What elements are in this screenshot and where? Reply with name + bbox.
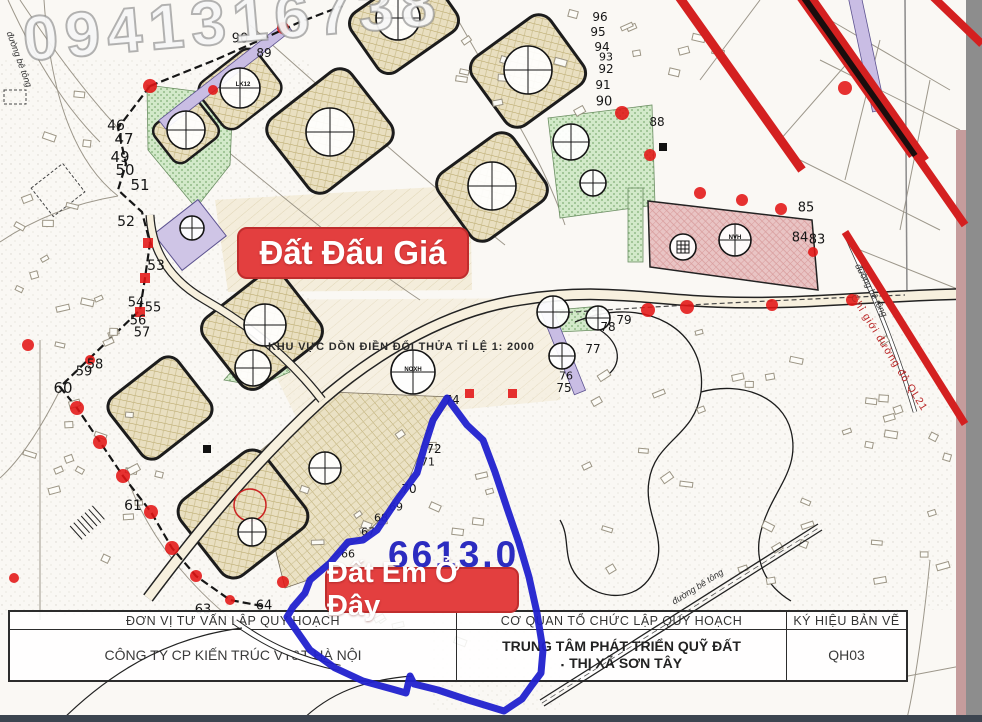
land-map-screenshot: 4647495051525354555657585960616364666768…: [0, 0, 982, 722]
organizer-line2: ▪THỊ XÃ SƠN TÂY: [561, 655, 682, 673]
organizer-line1: TRUNG TÂM PHÁT TRIỂN QUỸ ĐẤT: [502, 638, 741, 656]
title-block-col3-header: KÝ HIỆU BẢN VẼ: [787, 612, 906, 630]
my-land-badge-label: Đất Em Ở Đây: [327, 557, 517, 623]
auction-land-badge: Đất Đấu Giá: [237, 227, 469, 279]
my-land-badge: Đất Em Ở Đây: [325, 567, 519, 613]
drawing-code: QH03: [787, 630, 906, 680]
consultant-name: CÔNG TY CP KIẾN TRÚC VT&T HÀ NỘI: [10, 630, 457, 680]
bullet-icon: ▪: [561, 660, 564, 670]
organizer-name: TRUNG TÂM PHÁT TRIỂN QUỸ ĐẤT ▪THỊ XÃ SƠN…: [457, 630, 787, 680]
auction-land-badge-label: Đất Đấu Giá: [259, 234, 446, 272]
